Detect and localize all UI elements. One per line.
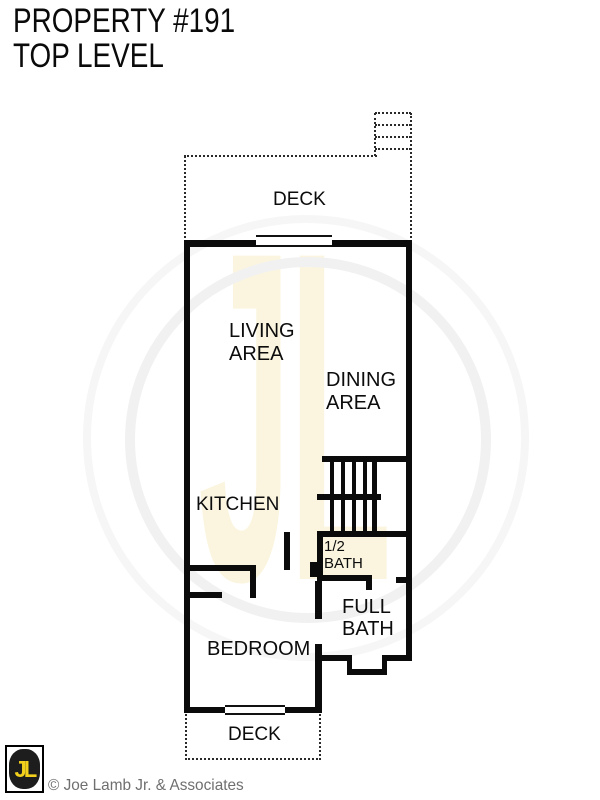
page-title-line2: TOP LEVEL <box>13 39 235 74</box>
watermark-ring-inner <box>125 257 491 623</box>
label-dining-line2: AREA <box>326 392 396 415</box>
company-logo: JL <box>5 745 44 793</box>
label-full-bath: FULL BATH <box>342 596 394 640</box>
deck-bottom-outline-bottom <box>185 758 321 760</box>
label-full-bath-line1: FULL <box>342 596 394 618</box>
label-deck-bottom: DECK <box>228 724 281 746</box>
deck-top-outline-left <box>184 156 186 242</box>
label-dining-line1: DINING <box>326 369 396 392</box>
half-bath-door-jamb <box>310 562 317 577</box>
exterior-stair-tread <box>375 124 411 126</box>
label-deck-top: DECK <box>273 189 326 211</box>
label-full-bath-line2: BATH <box>342 618 394 640</box>
bedroom-bath-wall-upper <box>315 581 322 619</box>
outer-wall-left <box>184 240 190 713</box>
deck-bottom-outline-left <box>185 714 187 760</box>
stair-tread <box>341 462 345 494</box>
exterior-stair-tread <box>375 136 411 138</box>
page-title: PROPERTY #191 TOP LEVEL <box>13 4 235 74</box>
page-title-line1: PROPERTY #191 <box>13 4 235 39</box>
full-bath-bump-bottom <box>347 669 387 675</box>
sliding-door-bottom-deck <box>225 705 285 715</box>
exterior-stair-tread <box>375 148 411 150</box>
stair-tread <box>363 500 367 531</box>
exterior-stair-tread <box>375 112 411 114</box>
kitchen-wall <box>284 532 290 570</box>
company-logo-monogram: JL <box>15 756 35 783</box>
copyright-text: © Joe Lamb Jr. & Associates <box>48 777 244 795</box>
deck-top-outline-right <box>410 113 412 242</box>
label-half-bath-line2: BATH <box>324 555 363 572</box>
deck-top-outline-top <box>184 155 377 157</box>
hall-wall-vertical <box>250 571 256 598</box>
label-dining-area: DINING AREA <box>326 369 396 415</box>
label-living-line2: AREA <box>229 343 295 366</box>
stairs-stringer <box>372 462 377 531</box>
label-kitchen: KITCHEN <box>196 494 279 516</box>
floor-plan-page: JL PROPERTY #191 TOP LEVEL <box>0 0 600 800</box>
stair-tread <box>352 500 356 531</box>
stairs-bottom-wall <box>317 531 406 537</box>
stair-tread <box>352 462 356 494</box>
bedroom-top-wall <box>188 592 222 598</box>
label-living-area: LIVING AREA <box>229 320 295 366</box>
stair-tread <box>330 500 334 531</box>
stair-tread <box>363 462 367 494</box>
sliding-door-top-deck <box>256 235 332 247</box>
stair-tread <box>341 500 345 531</box>
half-bath-door-stub <box>366 581 372 590</box>
label-bedroom: BEDROOM <box>207 638 310 661</box>
half-bath-bottom-wall <box>317 575 372 581</box>
label-half-bath: 1/2 BATH <box>324 538 363 572</box>
full-bath-top-wall <box>396 577 412 583</box>
stair-tread <box>330 462 334 494</box>
company-logo-badge: JL <box>9 749 40 789</box>
deck-bottom-outline-right <box>319 714 321 760</box>
outer-wall-right <box>406 240 412 661</box>
label-half-bath-line1: 1/2 <box>324 538 363 555</box>
full-bath-bottom-wall-right <box>382 655 412 661</box>
hall-wall-upper <box>188 565 256 571</box>
label-living-line1: LIVING <box>229 320 295 343</box>
